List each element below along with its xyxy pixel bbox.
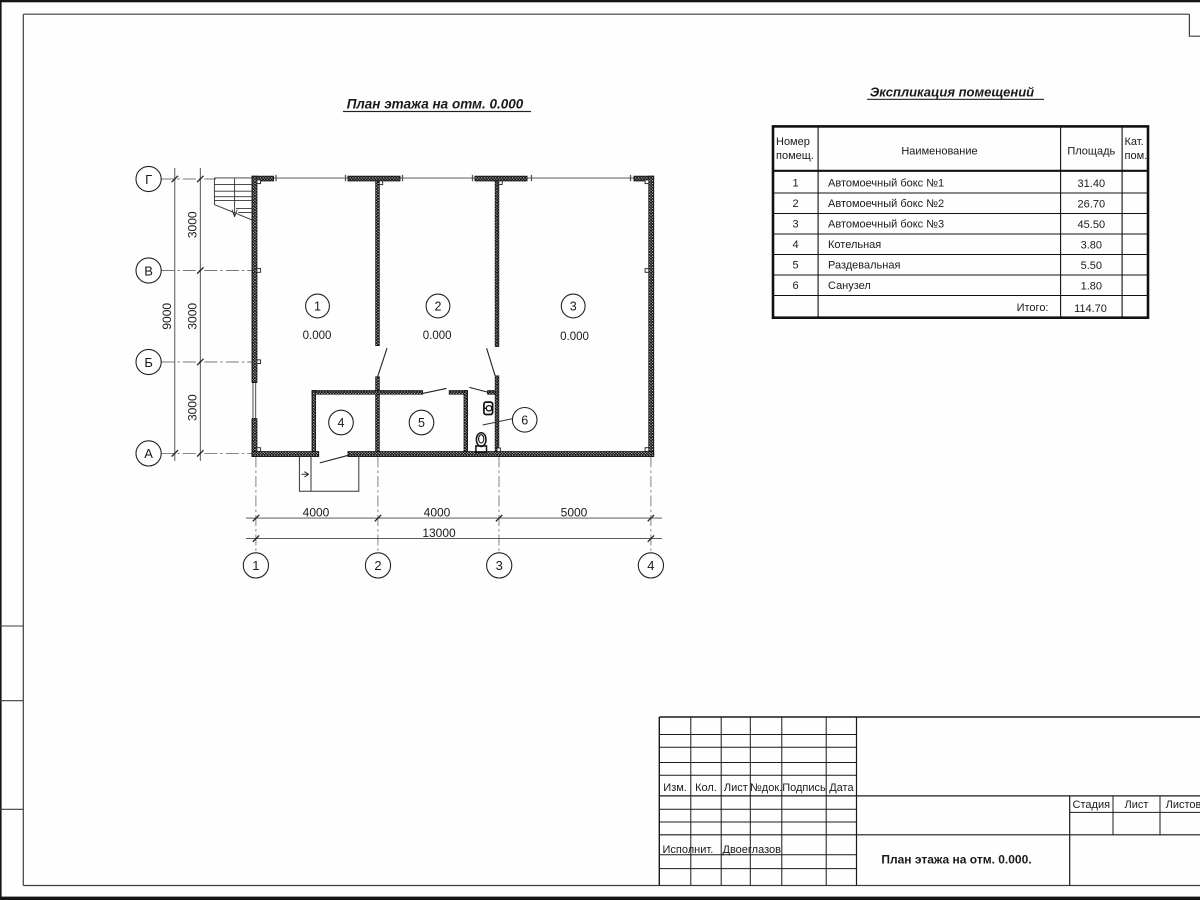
svg-text:Г: Г: [145, 172, 152, 187]
svg-text:Дата: Дата: [829, 782, 854, 794]
svg-text:6: 6: [792, 280, 798, 292]
svg-text:Исполнит.: Исполнит.: [663, 844, 714, 856]
svg-text:4000: 4000: [303, 506, 330, 520]
svg-text:2: 2: [792, 198, 798, 210]
svg-text:План этажа на отм. 0.000: План этажа на отм. 0.000: [347, 97, 524, 112]
svg-text:5.50: 5.50: [1081, 260, 1102, 272]
svg-text:0.000: 0.000: [303, 330, 332, 342]
svg-text:3000: 3000: [186, 394, 200, 421]
svg-text:3000: 3000: [186, 303, 200, 330]
svg-text:31.40: 31.40: [1078, 178, 1106, 190]
svg-text:4: 4: [338, 416, 345, 430]
svg-text:Экспликация помещений: Экспликация помещений: [870, 85, 1034, 100]
svg-text:4: 4: [647, 558, 654, 573]
svg-text:13000: 13000: [422, 526, 456, 540]
svg-text:Лист: Лист: [724, 782, 748, 794]
svg-text:пом.: пом.: [1125, 150, 1148, 162]
svg-text:Лист: Лист: [1125, 799, 1149, 811]
svg-text:Изм.: Изм.: [663, 782, 687, 794]
svg-text:3000: 3000: [186, 211, 200, 238]
svg-text:1.80: 1.80: [1081, 281, 1102, 293]
svg-text:Площадь: Площадь: [1067, 146, 1115, 158]
svg-text:№док.: №док.: [750, 782, 782, 794]
svg-text:2: 2: [374, 558, 381, 573]
svg-text:Листов: Листов: [1166, 799, 1200, 811]
svg-text:5: 5: [792, 260, 798, 272]
svg-text:45.50: 45.50: [1078, 219, 1106, 231]
svg-text:Наименование: Наименование: [901, 146, 977, 158]
svg-text:26.70: 26.70: [1078, 199, 1106, 211]
svg-text:9000: 9000: [160, 303, 174, 330]
svg-text:Кат.: Кат.: [1125, 136, 1144, 148]
svg-text:Подпись: Подпись: [782, 782, 826, 794]
svg-text:Автомоечный бокс №2: Автомоечный бокс №2: [828, 198, 944, 210]
svg-text:5000: 5000: [561, 506, 588, 520]
svg-text:Двоеглазов: Двоеглазов: [723, 844, 782, 856]
svg-text:Автомоечный бокс №3: Автомоечный бокс №3: [828, 219, 944, 231]
svg-text:1: 1: [252, 558, 259, 573]
svg-text:0.000: 0.000: [560, 331, 589, 343]
svg-text:6: 6: [521, 413, 528, 427]
svg-text:А: А: [144, 446, 153, 461]
svg-text:114.70: 114.70: [1074, 303, 1107, 315]
svg-text:Кол.: Кол.: [695, 782, 717, 794]
svg-text:Б: Б: [144, 355, 153, 370]
svg-text:Котельная: Котельная: [828, 239, 881, 251]
svg-text:Раздевальная: Раздевальная: [828, 260, 900, 272]
svg-text:3: 3: [496, 558, 503, 573]
svg-text:5: 5: [418, 416, 425, 430]
svg-text:Итого:: Итого:: [1017, 302, 1049, 314]
svg-text:В: В: [144, 263, 153, 278]
svg-text:0.000: 0.000: [423, 330, 452, 342]
svg-text:4: 4: [792, 239, 798, 251]
svg-text:помещ.: помещ.: [776, 150, 814, 162]
svg-text:3: 3: [792, 219, 798, 231]
svg-text:3.80: 3.80: [1081, 240, 1102, 252]
svg-text:Номер: Номер: [776, 136, 810, 148]
svg-text:Автомоечный бокс №1: Автомоечный бокс №1: [828, 178, 944, 190]
svg-text:2: 2: [435, 300, 442, 314]
svg-text:4000: 4000: [424, 506, 451, 520]
svg-text:3: 3: [570, 300, 577, 314]
svg-text:План этажа на отм. 0.000.: План этажа на отм. 0.000.: [881, 853, 1031, 867]
svg-text:Стадия: Стадия: [1073, 799, 1111, 811]
svg-text:1: 1: [314, 300, 321, 314]
svg-text:1: 1: [792, 178, 798, 190]
svg-text:Санузел: Санузел: [828, 280, 871, 292]
